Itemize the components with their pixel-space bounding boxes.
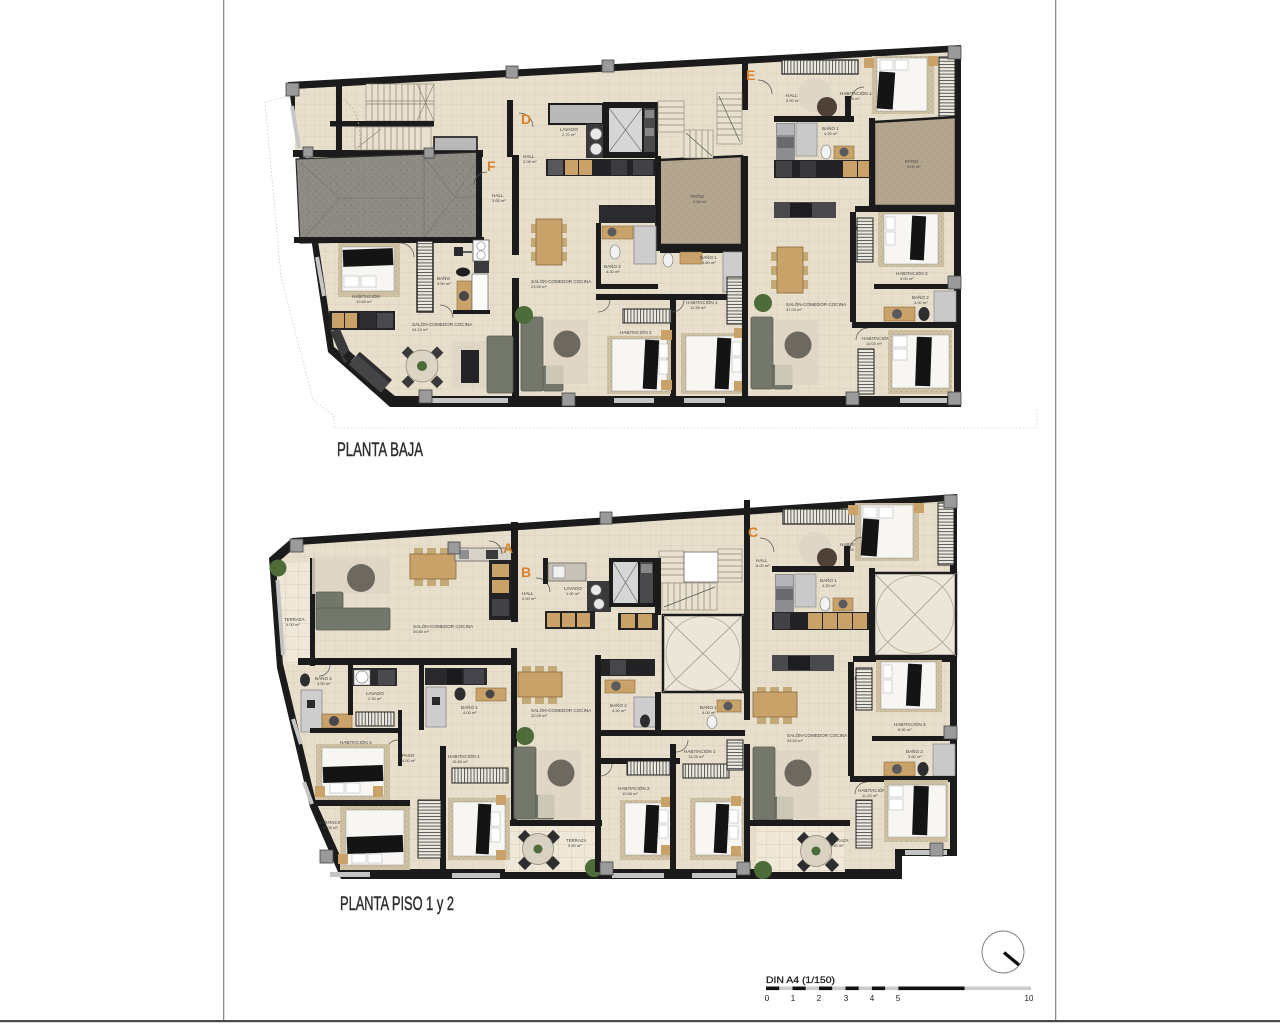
svg-text:3.60 m²: 3.60 m² [908,754,922,759]
svg-text:4.00 m²: 4.00 m² [702,710,716,715]
svg-text:37.05 m²: 37.05 m² [786,307,802,312]
svg-text:PLANTA BAJA: PLANTA BAJA [337,439,423,461]
svg-text:4.00 m²: 4.00 m² [286,622,300,627]
svg-text:10: 10 [1025,994,1034,1003]
svg-text:0: 0 [765,994,770,1003]
svg-text:4.20 m²: 4.20 m² [822,583,836,588]
svg-text:E: E [746,67,755,83]
svg-text:10.00 m²: 10.00 m² [866,341,882,346]
svg-text:3.65 m²: 3.65 m² [492,198,506,203]
svg-text:4.30 m²: 4.30 m² [612,708,626,713]
svg-text:4: 4 [870,994,875,1003]
svg-text:10.60 m²: 10.60 m² [356,299,372,304]
svg-text:4.20 m²: 4.20 m² [824,131,838,136]
svg-text:3: 3 [844,994,849,1003]
svg-text:DIN A4 (1/150): DIN A4 (1/150) [766,975,835,986]
svg-text:D: D [521,111,531,127]
svg-text:1: 1 [791,994,796,1003]
svg-text:4.50 m²: 4.50 m² [317,681,331,686]
svg-text:2.08 m²: 2.08 m² [523,159,537,164]
svg-text:2.00 m²: 2.00 m² [522,596,536,601]
svg-text:A: A [503,540,513,556]
svg-text:2.30 m²: 2.30 m² [368,696,382,701]
svg-text:24.10 m²: 24.10 m² [412,327,428,332]
svg-text:14.20 m²: 14.20 m² [688,754,704,759]
svg-text:11.20 m²: 11.20 m² [862,793,878,798]
svg-text:4.00 m²: 4.00 m² [463,710,477,715]
svg-text:10.65 m²: 10.65 m² [622,791,638,796]
svg-text:4.60 m²: 4.60 m² [702,260,716,265]
svg-text:2.70 m²: 2.70 m² [562,132,576,137]
svg-text:5.50 m²: 5.50 m² [568,843,582,848]
svg-text:32.05 m²: 32.05 m² [531,713,547,718]
svg-text:9.00 m²: 9.00 m² [898,727,912,732]
svg-text:PLANTA PISO 1 y 2: PLANTA PISO 1 y 2 [340,893,454,915]
svg-text:B: B [521,564,531,580]
svg-text:10.00 m²: 10.00 m² [322,825,338,830]
svg-text:12.50 m²: 12.50 m² [690,305,706,310]
svg-text:5.90 m²: 5.90 m² [786,98,800,103]
svg-text:5: 5 [896,994,901,1003]
svg-text:9.00 m²: 9.00 m² [907,164,921,169]
svg-text:23.50 m²: 23.50 m² [531,284,547,289]
svg-text:9.00 m²: 9.00 m² [900,276,914,281]
svg-text:C: C [748,524,758,540]
svg-text:6.00 m²: 6.00 m² [756,563,770,568]
svg-text:4.30 m²: 4.30 m² [606,269,620,274]
svg-text:F: F [487,158,496,174]
svg-text:1.90 m²: 1.90 m² [566,591,580,596]
svg-text:3.00 m²: 3.00 m² [914,300,928,305]
svg-text:39.80 m²: 39.80 m² [413,629,429,634]
svg-text:3.50 m²: 3.50 m² [437,281,451,286]
svg-text:15.80 m²: 15.80 m² [452,759,468,764]
svg-text:9.00 m²: 9.00 m² [693,199,707,204]
svg-text:4.00 m²: 4.00 m² [402,758,416,763]
svg-text:33.50 m²: 33.50 m² [787,738,803,743]
svg-text:2: 2 [817,994,822,1003]
